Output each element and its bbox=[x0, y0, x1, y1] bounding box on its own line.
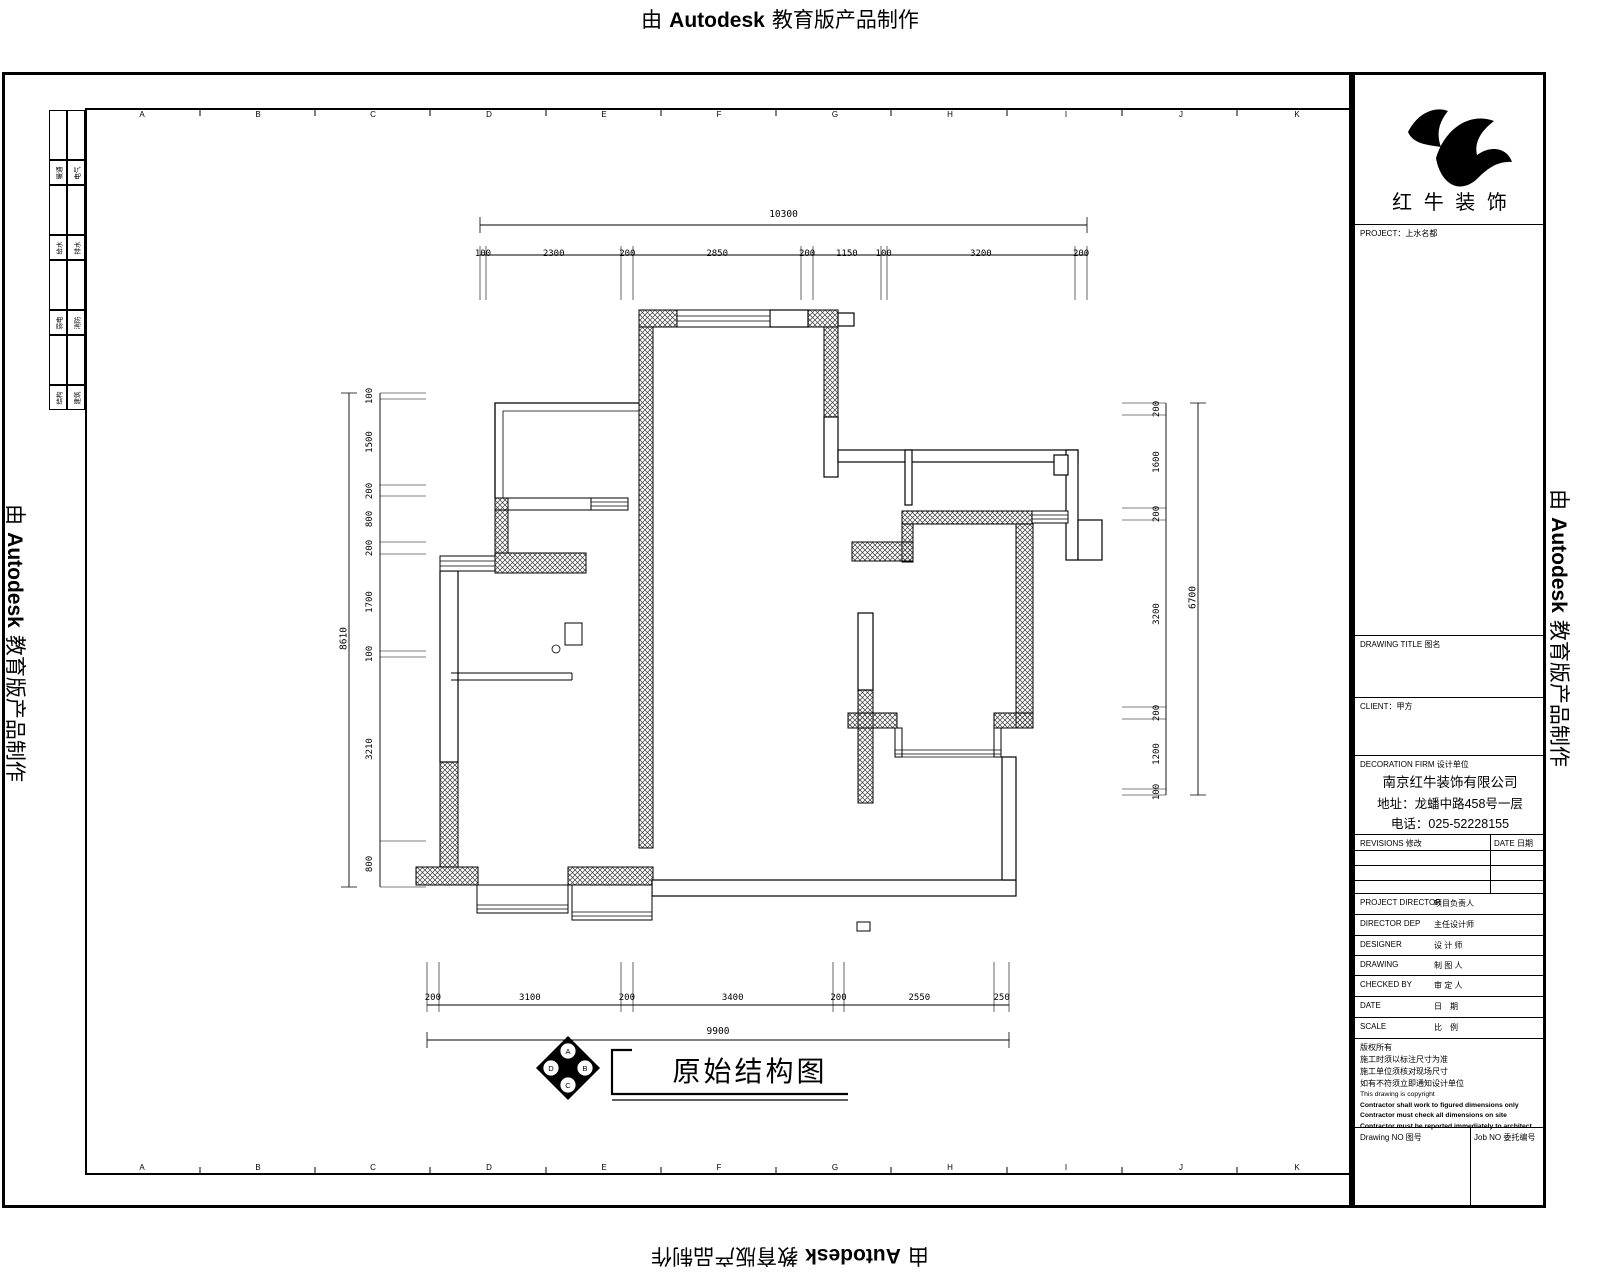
revisions-line bbox=[1355, 865, 1545, 866]
dim-chain-right: 200 1600 200 3200 200 1200 100 bbox=[1149, 403, 1165, 795]
dim-total-top: 10300 bbox=[480, 209, 1087, 220]
dim-segment: 200 bbox=[1149, 707, 1165, 719]
dim-segment: 3400 bbox=[633, 991, 833, 1004]
dim-segment: 200 bbox=[1149, 403, 1165, 415]
row-line bbox=[1355, 914, 1545, 915]
dim-segment: 200 bbox=[427, 991, 439, 1004]
dim-segment: 1700 bbox=[362, 554, 378, 652]
dim-total-right: 6700 bbox=[1188, 556, 1199, 640]
dim-segment: 2850 bbox=[633, 247, 801, 260]
dim-segment: 800 bbox=[362, 496, 378, 542]
dim-segment: 3200 bbox=[887, 247, 1076, 260]
dim-segment: 1500 bbox=[362, 399, 378, 485]
drawing-title: 原始结构图 bbox=[650, 1050, 850, 1090]
row-line bbox=[1355, 975, 1545, 976]
company-address: 地址：龙蟠中路458号一层 bbox=[1357, 794, 1543, 814]
dim-chain-bottom: 200 3100 200 3400 200 2550 250 bbox=[427, 991, 1009, 1004]
revisions-label: REVISIONS 修改 bbox=[1360, 838, 1422, 849]
dim-segment: 200 bbox=[362, 542, 378, 553]
row-label: DRAWING bbox=[1360, 960, 1398, 969]
drawing-title-label: DRAWING TITLE 图名 bbox=[1360, 639, 1440, 650]
dim-segment: 200 bbox=[621, 991, 633, 1004]
project-label: PROJECT：上水名都 bbox=[1360, 228, 1437, 239]
title-block-line bbox=[1355, 224, 1545, 225]
dim-segment: 1600 bbox=[1149, 415, 1165, 509]
revisions-divider bbox=[1490, 834, 1491, 893]
row-label-zh: 日 期 bbox=[1434, 1001, 1458, 1012]
dim-segment: 200 bbox=[801, 247, 813, 260]
footer-line bbox=[1355, 1127, 1545, 1128]
dim-segment: 200 bbox=[1075, 247, 1087, 260]
row-label: DESIGNER bbox=[1360, 940, 1402, 949]
title-block-line bbox=[1355, 755, 1545, 756]
revisions-line bbox=[1355, 834, 1545, 835]
row-line bbox=[1355, 996, 1545, 997]
dim-total-bottom: 9900 bbox=[427, 1026, 1009, 1037]
dimension-lines bbox=[341, 217, 1206, 1048]
cad-sheet: 由Autodesk教育版产品制作 由Autodesk教育版产品制作 由Autod… bbox=[0, 0, 1600, 1280]
dim-chain-left: 100 1500 200 800 200 1700 100 3210 800 bbox=[362, 393, 378, 887]
row-label: DIRECTOR DEP bbox=[1360, 919, 1420, 928]
row-label-zh: 制 图 人 bbox=[1434, 960, 1462, 971]
dim-segment: 200 bbox=[833, 991, 845, 1004]
compass-letter: D bbox=[548, 1064, 554, 1073]
revisions-line bbox=[1355, 850, 1545, 851]
frame-ticks bbox=[200, 108, 1237, 1175]
row-label-zh: 项目负责人 bbox=[1434, 898, 1474, 909]
logo-mark bbox=[1408, 109, 1512, 186]
notes: 版权所有 施工时须以标注尺寸为准 施工单位须核对现场尺寸 如有不符须立即通知设计… bbox=[1360, 1042, 1544, 1132]
date-column-label: DATE 日期 bbox=[1494, 838, 1533, 849]
row-label-zh: 审 定 人 bbox=[1434, 980, 1462, 991]
dim-segment: 2550 bbox=[844, 991, 994, 1004]
compass-symbol: A B C D bbox=[536, 1036, 600, 1100]
dim-segment: 250 bbox=[994, 991, 1009, 1004]
compass-letter: A bbox=[565, 1047, 570, 1056]
row-line bbox=[1355, 935, 1545, 936]
dim-segment: 200 bbox=[621, 247, 633, 260]
dim-segment: 800 bbox=[362, 841, 378, 887]
row-label-zh: 比 例 bbox=[1434, 1022, 1458, 1033]
revisions-line bbox=[1355, 880, 1545, 881]
dim-segment: 2300 bbox=[486, 247, 622, 260]
row-label: PROJECT DIRECTOR bbox=[1360, 898, 1441, 907]
firm-label: DECORATION FIRM 设计单位 bbox=[1360, 759, 1469, 770]
dim-segment: 3200 bbox=[1149, 520, 1165, 707]
row-line bbox=[1355, 955, 1545, 956]
footer-divider bbox=[1470, 1127, 1471, 1208]
company-info: 南京红牛装饰有限公司 地址：龙蟠中路458号一层 电话：025-52228155 bbox=[1357, 772, 1543, 834]
row-label-zh: 主任设计师 bbox=[1434, 919, 1474, 930]
dim-segment: 3210 bbox=[362, 657, 378, 841]
client-label: CLIENT：甲方 bbox=[1360, 701, 1412, 712]
title-block-line bbox=[1355, 635, 1545, 636]
company-brand: 红 牛 装 饰 bbox=[1363, 186, 1539, 215]
compass-letter: C bbox=[565, 1081, 571, 1090]
row-label: SCALE bbox=[1360, 1022, 1386, 1031]
company-name: 南京红牛装饰有限公司 bbox=[1357, 772, 1543, 794]
dim-segment: 3100 bbox=[439, 991, 621, 1004]
dim-segment: 1200 bbox=[1149, 719, 1165, 789]
row-line bbox=[1355, 1017, 1545, 1018]
row-label: DATE bbox=[1360, 1001, 1381, 1010]
compass-letter: B bbox=[582, 1064, 587, 1073]
drawing-no-label: Drawing NO 图号 bbox=[1360, 1132, 1422, 1143]
job-no-label: Job NO 委托编号 bbox=[1474, 1132, 1535, 1143]
dim-chain-top: 100 2300 200 2850 200 1150 100 3200 200 bbox=[480, 247, 1087, 260]
dim-segment: 200 bbox=[1149, 508, 1165, 520]
row-line bbox=[1355, 893, 1545, 894]
dim-segment: 1150 bbox=[813, 247, 881, 260]
title-block-line bbox=[1355, 697, 1545, 698]
company-phone: 电话：025-52228155 bbox=[1357, 814, 1543, 834]
row-label: CHECKED BY bbox=[1360, 980, 1412, 989]
row-line bbox=[1355, 1038, 1545, 1039]
dim-total-left: 8610 bbox=[339, 597, 350, 681]
dim-segment: 200 bbox=[362, 485, 378, 496]
floor-plan-walls bbox=[416, 310, 1102, 931]
dim-segment: 100 bbox=[1149, 789, 1165, 795]
row-label-zh: 设 计 师 bbox=[1434, 940, 1462, 951]
